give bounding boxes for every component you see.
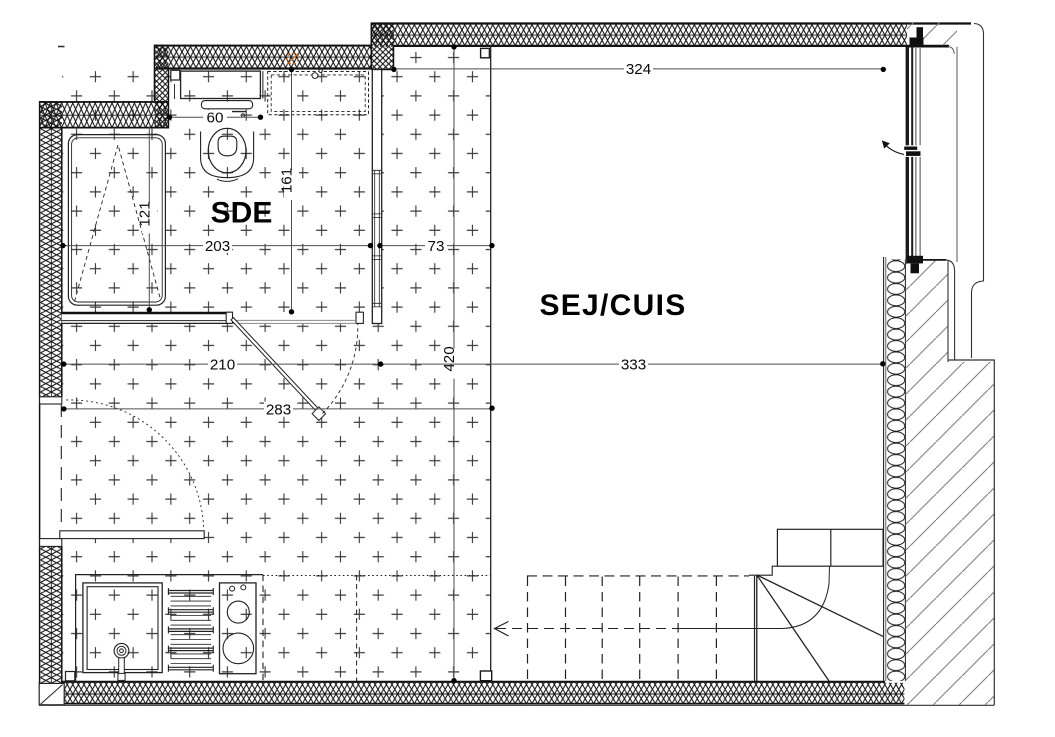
- svg-text:283: 283: [266, 402, 291, 419]
- svg-text:121: 121: [136, 201, 153, 226]
- svg-text:SEJ/CUIS: SEJ/CUIS: [539, 289, 686, 322]
- svg-text:161: 161: [279, 168, 296, 193]
- svg-text:203: 203: [205, 238, 230, 255]
- svg-text:333: 333: [621, 357, 646, 374]
- svg-text:SDE: SDE: [211, 197, 273, 230]
- svg-text:73: 73: [428, 238, 445, 255]
- svg-text:210: 210: [210, 357, 235, 374]
- svg-text:60: 60: [207, 109, 224, 126]
- svg-text:420: 420: [441, 346, 458, 371]
- svg-text:324: 324: [626, 61, 651, 78]
